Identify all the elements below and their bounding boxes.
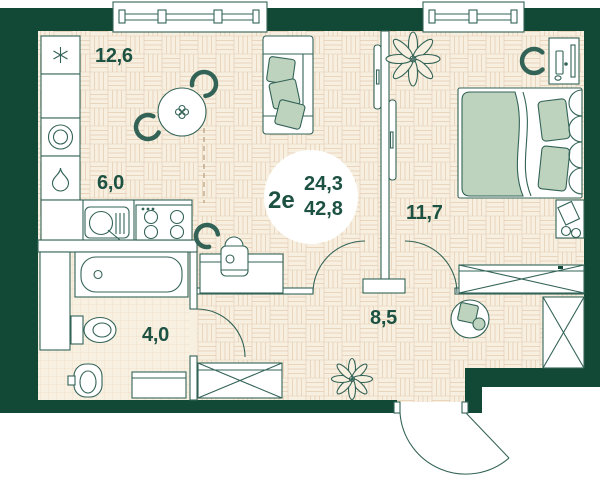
tv-living — [374, 45, 381, 109]
wall-right — [584, 8, 600, 387]
monitor — [571, 45, 575, 77]
hallway-pouf — [451, 300, 489, 338]
wardrobe-handle — [558, 266, 563, 269]
mouse — [564, 62, 568, 66]
window-bay-bedroom — [423, 2, 524, 32]
room-label-hallway: 8,5 — [370, 307, 397, 329]
room-label-living: 12,6 — [95, 45, 133, 67]
floor-plan: 2е 24,3 42,8 12,6 6,0 4,0 8,5 11,7 — [0, 0, 600, 479]
unit-badge: 2е 24,3 42,8 — [264, 150, 358, 244]
entry-door-post-left — [394, 402, 400, 413]
unit-area-total: 42,8 — [304, 198, 343, 220]
wardrobe-bedroom — [459, 265, 584, 293]
sofa — [263, 36, 313, 134]
water-heater — [41, 156, 80, 200]
entry-door-post-right — [462, 402, 468, 413]
bathroom-cabinet — [132, 372, 186, 398]
bed — [458, 88, 582, 198]
wall-bathroom-east-lower — [190, 356, 197, 400]
stove — [136, 205, 192, 240]
bathtub — [75, 252, 188, 297]
window-bay-living — [113, 2, 267, 32]
wall-bottom — [0, 400, 397, 413]
wall-kitchen-bathroom — [38, 240, 197, 252]
wall-partition-foot — [363, 279, 405, 293]
wall-top-middle — [267, 8, 423, 31]
room-label-bathroom: 4,0 — [142, 324, 169, 346]
floor-plan-canvas: 2е 24,3 42,8 12,6 6,0 4,0 8,5 11,7 — [0, 0, 600, 479]
vent-shaft — [40, 252, 70, 350]
hallway-plant — [332, 359, 373, 400]
pillow — [538, 98, 571, 141]
wall-partition — [381, 31, 389, 279]
duvet — [462, 92, 523, 196]
kitchen-counter — [41, 200, 192, 240]
washing-machine — [41, 118, 80, 156]
hallway-floor — [197, 293, 584, 368]
unit-type-label: 2е — [268, 187, 295, 214]
wardrobe-hallway-left — [198, 363, 282, 398]
room-label-bedroom: 11,7 — [406, 202, 443, 224]
keyboard — [556, 51, 563, 74]
wall-left — [0, 8, 38, 413]
pillow — [538, 146, 570, 192]
kitchen-cabinet — [41, 74, 80, 118]
kitchen-appliances — [41, 36, 80, 200]
room-label-kitchen: 6,0 — [97, 172, 124, 194]
wall-bottom-right-band — [467, 368, 600, 387]
wardrobe-hallway-right — [543, 297, 584, 368]
nightstand — [556, 200, 584, 238]
toilet — [71, 316, 116, 344]
unit-area-living: 24,3 — [304, 173, 343, 195]
